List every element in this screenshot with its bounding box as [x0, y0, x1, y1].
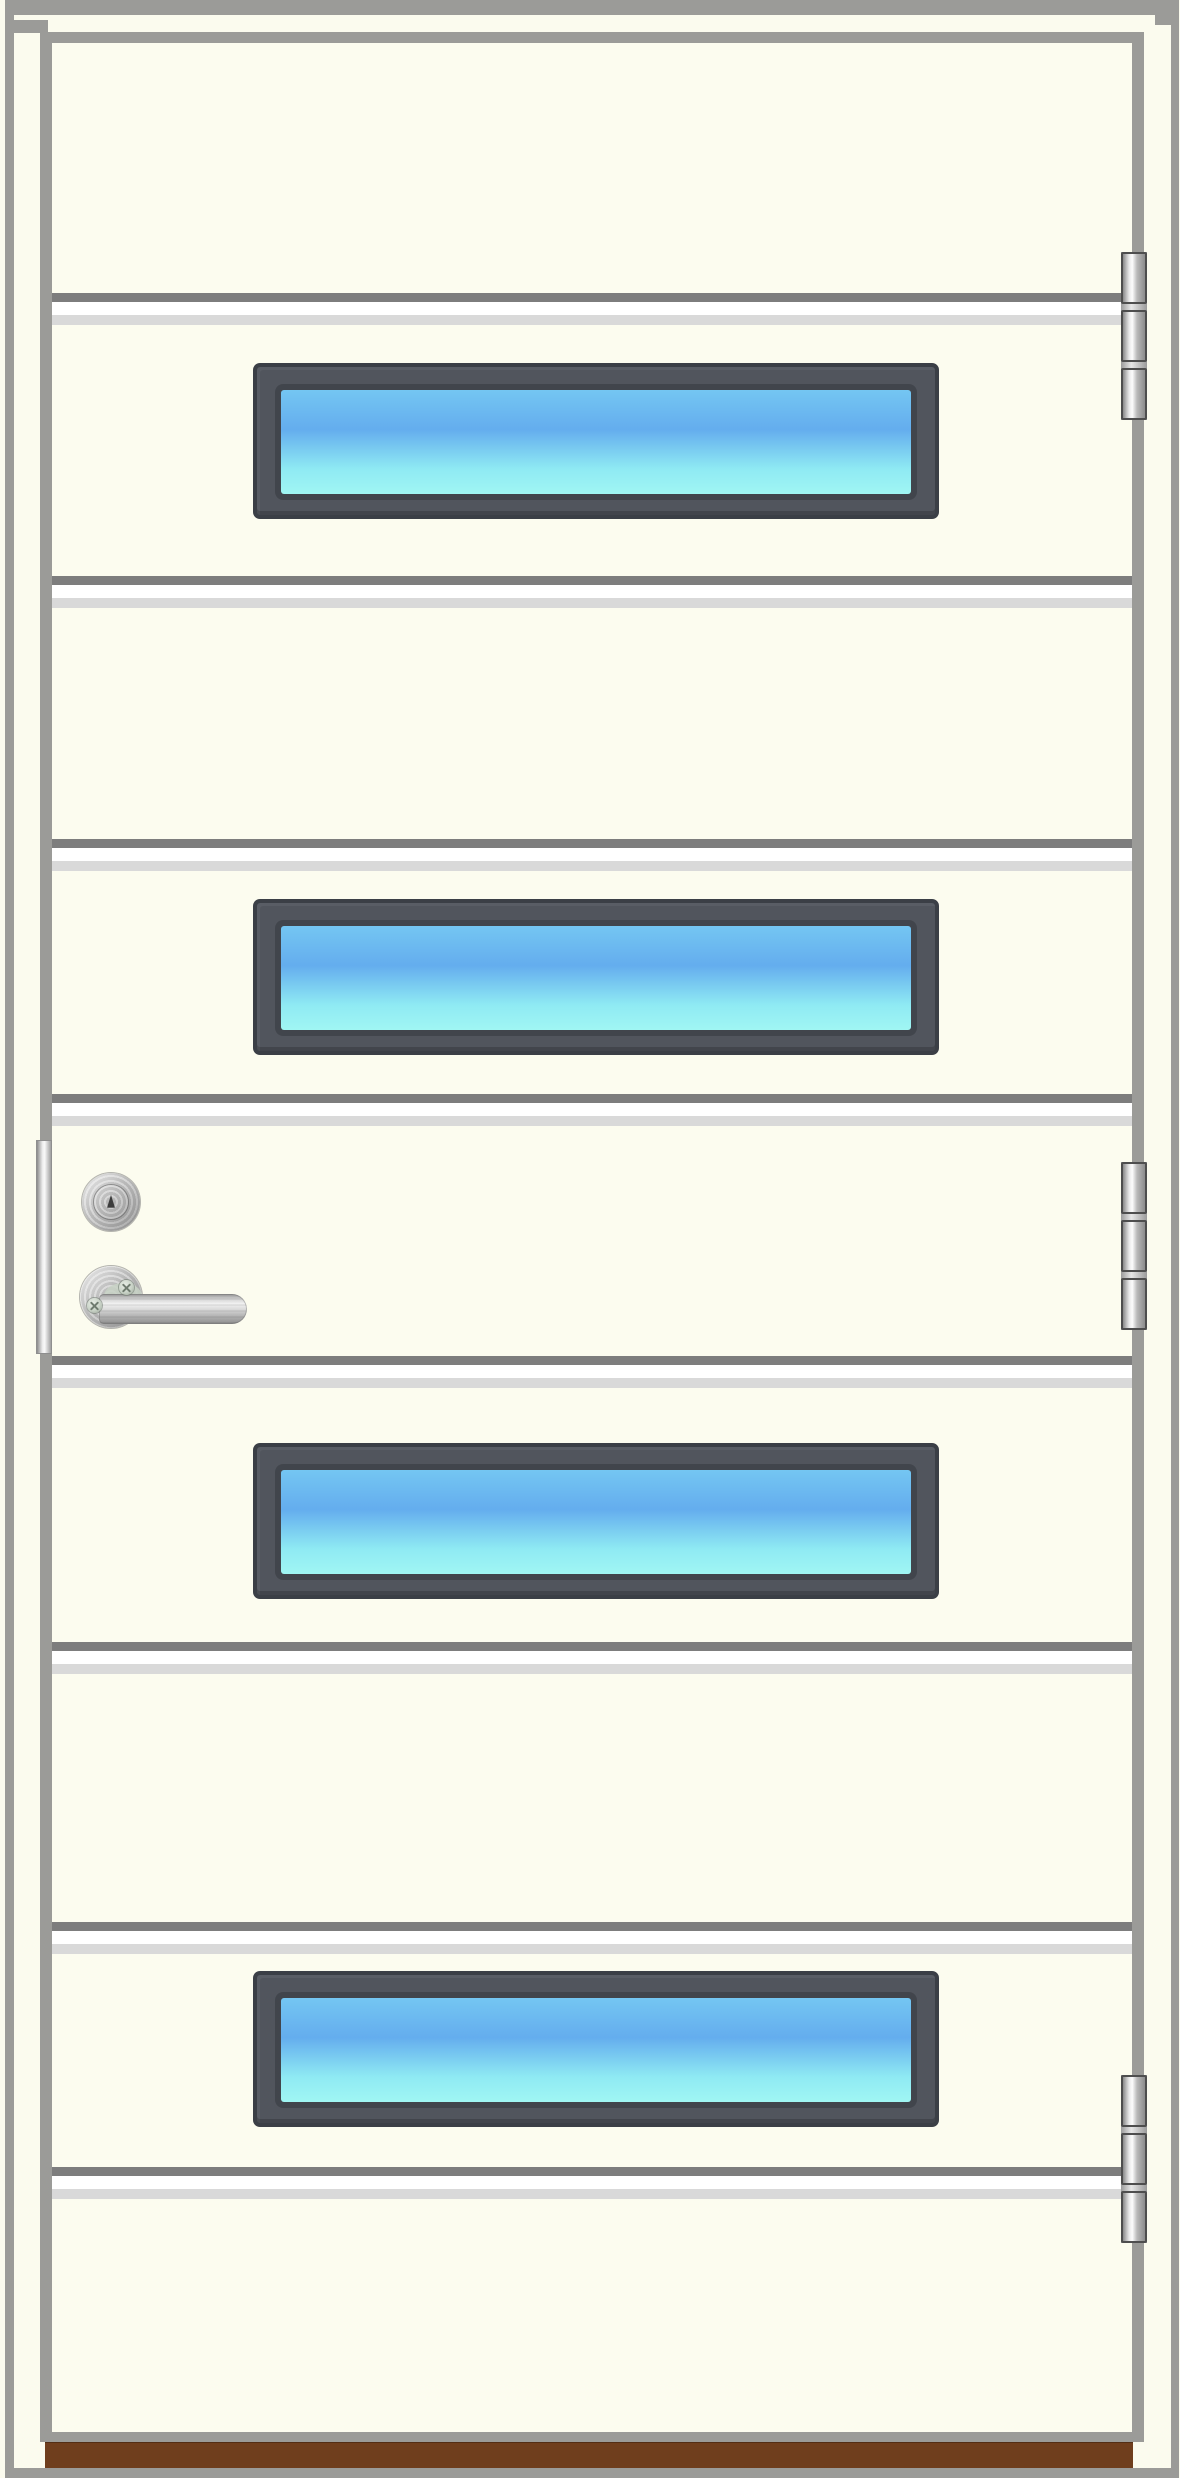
groove-shadow-line — [52, 1356, 1132, 1365]
groove-soft-shadow-line — [52, 315, 1132, 325]
window-glass — [281, 390, 911, 494]
hinge-knuckle — [1121, 252, 1147, 304]
panel-groove-6 — [52, 1642, 1132, 1674]
groove-highlight-line — [52, 1651, 1132, 1664]
groove-highlight-line — [52, 302, 1132, 315]
groove-shadow-line — [52, 1094, 1132, 1103]
panel-groove-5 — [52, 1356, 1132, 1388]
hinge-knuckle — [1121, 2133, 1147, 2185]
glazing-window-1 — [253, 363, 939, 519]
groove-highlight-line — [52, 2176, 1132, 2189]
glazing-window-3 — [253, 1443, 939, 1599]
groove-highlight-line — [52, 585, 1132, 598]
keyhole-icon — [107, 1195, 115, 1208]
panel-groove-8 — [52, 2167, 1132, 2199]
hinge-knuckle — [1121, 368, 1147, 420]
groove-soft-shadow-line — [52, 861, 1132, 871]
hinge-knuckle — [1121, 2191, 1147, 2243]
groove-highlight-line — [52, 848, 1132, 861]
window-glass — [281, 1998, 911, 2102]
threshold — [45, 2442, 1133, 2468]
panel-groove-1 — [52, 293, 1132, 325]
window-glass — [281, 926, 911, 1030]
window-glass — [281, 1470, 911, 1574]
groove-highlight-line — [52, 1103, 1132, 1116]
door-frame-rabbet-right — [1155, 12, 1179, 25]
hinge-knuckle — [1121, 1278, 1147, 1330]
hinge-middle — [1121, 1162, 1147, 1330]
hinge-knuckle — [1121, 2075, 1147, 2127]
hinge-top — [1121, 252, 1147, 420]
groove-soft-shadow-line — [52, 1378, 1132, 1388]
panel-groove-7 — [52, 1922, 1132, 1954]
groove-soft-shadow-line — [52, 2189, 1132, 2199]
rosette-screw-upper — [119, 1280, 134, 1295]
groove-shadow-line — [52, 1642, 1132, 1651]
lock-cylinder — [82, 1173, 140, 1231]
groove-soft-shadow-line — [52, 1116, 1132, 1126]
hinge-knuckle — [1121, 1220, 1147, 1272]
groove-highlight-line — [52, 1931, 1132, 1944]
hinge-knuckle — [1121, 310, 1147, 362]
panel-groove-4 — [52, 1094, 1132, 1126]
door-product-illustration — [0, 0, 1180, 2478]
groove-shadow-line — [52, 293, 1132, 302]
lock-faceplate — [36, 1140, 52, 1354]
groove-soft-shadow-line — [52, 1664, 1132, 1674]
groove-shadow-line — [52, 2167, 1132, 2176]
glazing-window-4 — [253, 1971, 939, 2127]
rosette-screw-lower — [87, 1298, 102, 1313]
lever-handle — [99, 1294, 247, 1324]
groove-shadow-line — [52, 1922, 1132, 1931]
panel-groove-2 — [52, 576, 1132, 608]
groove-shadow-line — [52, 576, 1132, 585]
groove-soft-shadow-line — [52, 598, 1132, 608]
hinge-knuckle — [1121, 1162, 1147, 1214]
panel-groove-3 — [52, 839, 1132, 871]
groove-highlight-line — [52, 1365, 1132, 1378]
hinge-bottom — [1121, 2075, 1147, 2243]
groove-soft-shadow-line — [52, 1944, 1132, 1954]
groove-shadow-line — [52, 839, 1132, 848]
glazing-window-2 — [253, 899, 939, 1055]
